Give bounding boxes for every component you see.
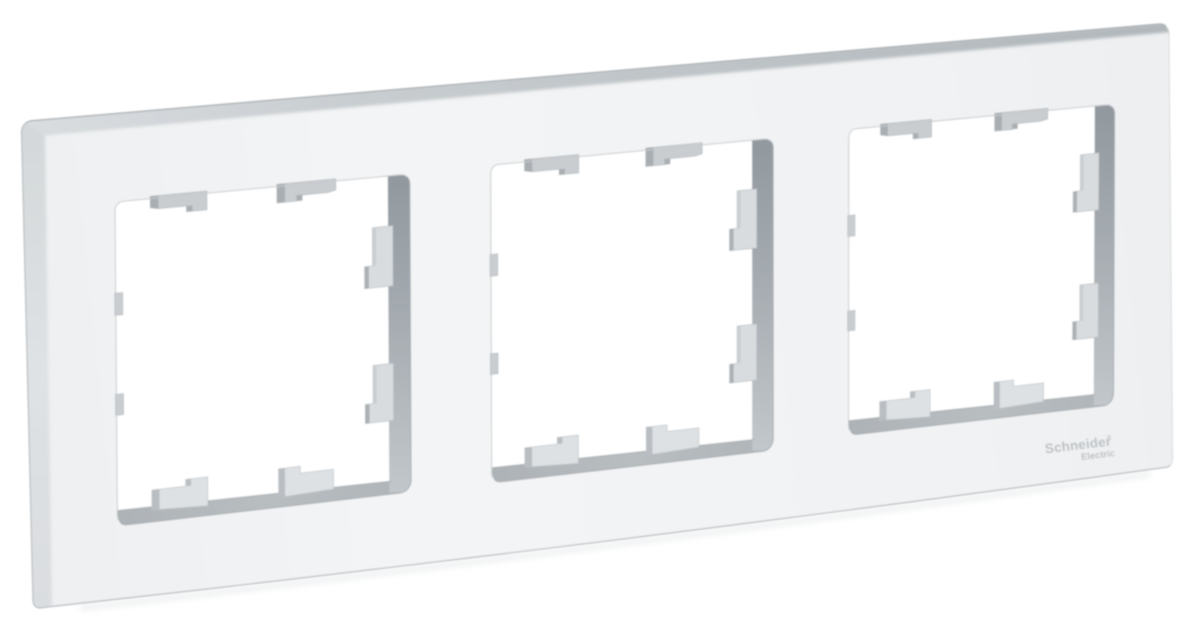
svg-text:®: ® [1107,434,1112,441]
